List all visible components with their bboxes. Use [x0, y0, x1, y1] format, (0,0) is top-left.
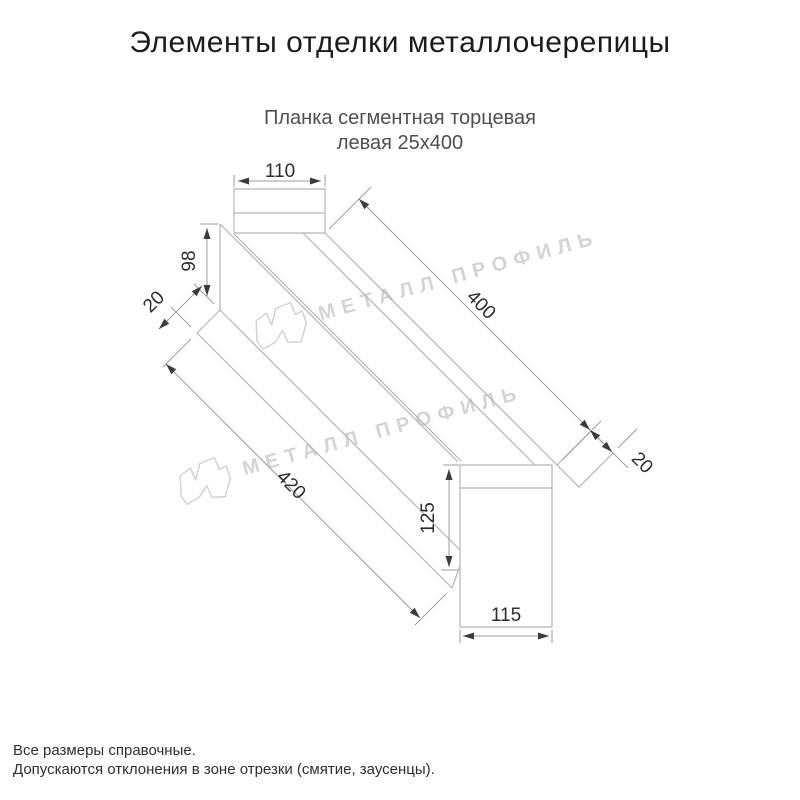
lip-fold-line [303, 233, 535, 465]
dim-20-right-label: 20 [627, 448, 657, 478]
dimension-20-right: 20 [590, 429, 657, 478]
footer-notes: Все размеры справочные. Допускаются откл… [13, 741, 773, 779]
right-end-fold [557, 431, 613, 487]
top-face-right-edge [325, 233, 557, 465]
dimension-98: 98 [179, 224, 218, 296]
profile-outline [197, 189, 613, 627]
top-end-tab [234, 189, 325, 233]
left-fold-cap [197, 310, 220, 333]
dim-125-label: 125 [418, 502, 439, 534]
dimension-110: 110 [234, 161, 325, 187]
bottom-tip-edge [452, 566, 460, 588]
dim-110-label: 110 [265, 161, 295, 182]
dim-400-label: 400 [462, 286, 499, 323]
dimension-125: 125 [418, 465, 459, 570]
main-fold-edge-b [234, 234, 461, 461]
dim-20-left-label: 20 [139, 287, 169, 317]
dimension-400: 400 [329, 187, 601, 460]
dim-420-label: 420 [272, 466, 309, 503]
footer-note-line1: Все размеры справочные. [13, 741, 773, 760]
footer-note-line2: Допускаются отклонения в зоне отрезки (с… [13, 760, 773, 779]
dim-98-label: 98 [179, 250, 200, 271]
catalog-drawing-page: Элементы отделки металлочерепицы Планка … [0, 0, 800, 800]
technical-drawing: 110 98 20 400 [0, 0, 800, 800]
main-fold-edge-a [220, 224, 458, 462]
dimension-20-left: 20 [139, 284, 214, 329]
hem-outer-edge [197, 333, 452, 588]
dimension-420: 420 [163, 339, 446, 625]
bottom-end-tab [460, 465, 552, 627]
dimension-115: 115 [460, 605, 552, 643]
dim-115-label: 115 [491, 605, 521, 626]
